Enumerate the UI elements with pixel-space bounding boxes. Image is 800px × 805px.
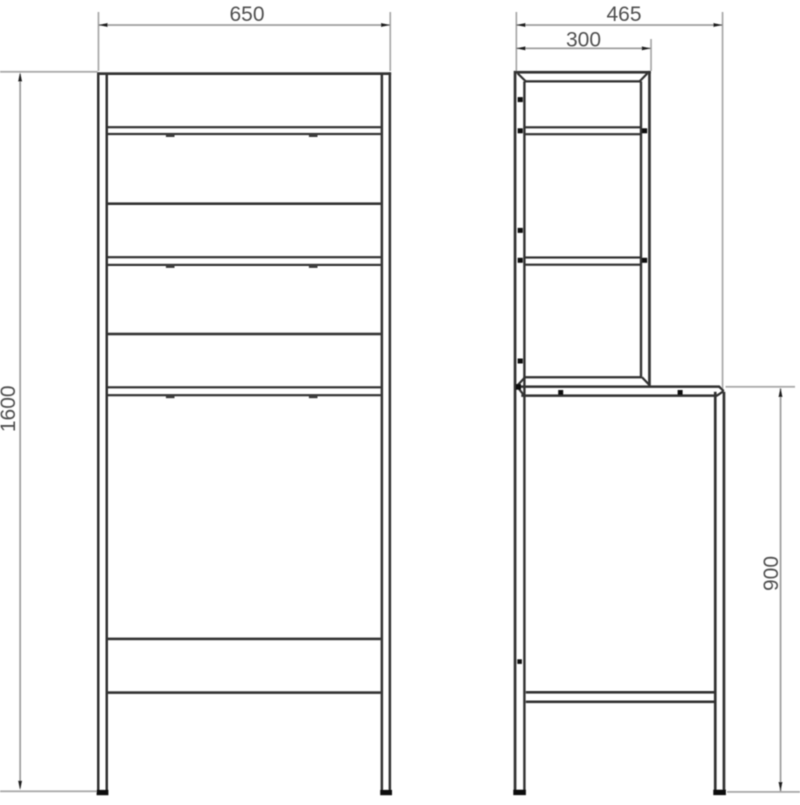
svg-text:650: 650 [229,3,264,26]
svg-text:900: 900 [760,556,783,591]
svg-text:1600: 1600 [0,385,20,432]
svg-text:300: 300 [566,28,601,51]
svg-text:465: 465 [606,3,641,26]
